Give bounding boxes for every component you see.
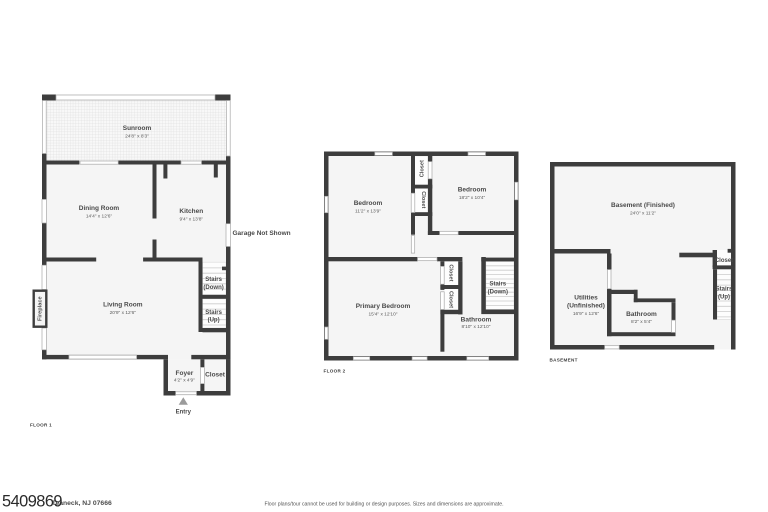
svg-text:Stairs: Stairs [716,286,733,292]
svg-text:Closet: Closet [447,264,453,281]
svg-text:Living Room: Living Room [103,302,143,309]
svg-text:Closet: Closet [420,191,426,208]
svg-text:24'0" x 11'2": 24'0" x 11'2" [630,210,656,216]
svg-text:Primary Bedroom: Primary Bedroom [356,303,411,310]
svg-text:4'2" x 4'9": 4'2" x 4'9" [174,377,195,383]
svg-text:5409869: 5409869 [2,493,62,511]
svg-text:Closet: Closet [715,258,733,264]
svg-text:Closet: Closet [420,160,426,177]
svg-text:(Down): (Down) [488,289,508,295]
svg-text:Bedroom: Bedroom [458,187,487,194]
svg-text:Basement (Finished): Basement (Finished) [611,202,675,209]
svg-text:Entry: Entry [176,409,192,415]
svg-text:Sunroom: Sunroom [123,125,152,132]
svg-text:Stairs: Stairs [205,277,222,283]
svg-text:11'2" x 13'9": 11'2" x 13'9" [355,208,381,214]
svg-text:8'2" x 5'4": 8'2" x 5'4" [631,319,652,325]
svg-text:Stairs: Stairs [205,310,222,316]
svg-text:15'4" x 12'10": 15'4" x 12'10" [369,311,398,317]
svg-text:14'4" x 12'6": 14'4" x 12'6" [86,213,113,219]
svg-text:(Unfinished): (Unfinished) [567,302,605,309]
svg-text:Bathroom: Bathroom [461,317,492,324]
svg-text:(Down): (Down) [203,285,223,291]
svg-text:24'8" x 8'3": 24'8" x 8'3" [125,134,149,140]
svg-text:Dining Room: Dining Room [79,205,120,212]
svg-text:FLOOR 1: FLOOR 1 [30,422,52,427]
svg-text:18'2" x 10'4": 18'2" x 10'4" [459,195,486,201]
svg-text:Bedroom: Bedroom [354,200,383,207]
svg-text:Bathroom: Bathroom [626,311,657,318]
svg-text:16'9" x 12'6": 16'9" x 12'6" [573,311,600,317]
svg-text:FLOOR 2: FLOOR 2 [324,368,346,373]
svg-text:Foyer: Foyer [176,370,194,377]
svg-text:20'9" x 12'6": 20'9" x 12'6" [110,310,137,316]
svg-text:Closet: Closet [447,291,453,308]
svg-text:BASEMENT: BASEMENT [550,357,578,362]
svg-text:(Up): (Up) [718,294,730,300]
svg-text:Stairs: Stairs [489,282,506,288]
svg-text:9'4" x 13'8": 9'4" x 13'8" [179,217,203,223]
svg-text:Closet: Closet [205,371,226,378]
svg-text:Floor plans/tour cannot be use: Floor plans/tour cannot be used for buil… [264,501,503,507]
svg-text:Utilities: Utilities [574,294,598,301]
svg-text:Garage Not Shown: Garage Not Shown [233,230,291,237]
svg-text:Fireplace: Fireplace [38,296,44,321]
svg-text:8'10" x 12'10": 8'10" x 12'10" [462,324,491,330]
svg-text:Kitchen: Kitchen [179,208,203,215]
svg-text:(Up): (Up) [208,318,220,324]
